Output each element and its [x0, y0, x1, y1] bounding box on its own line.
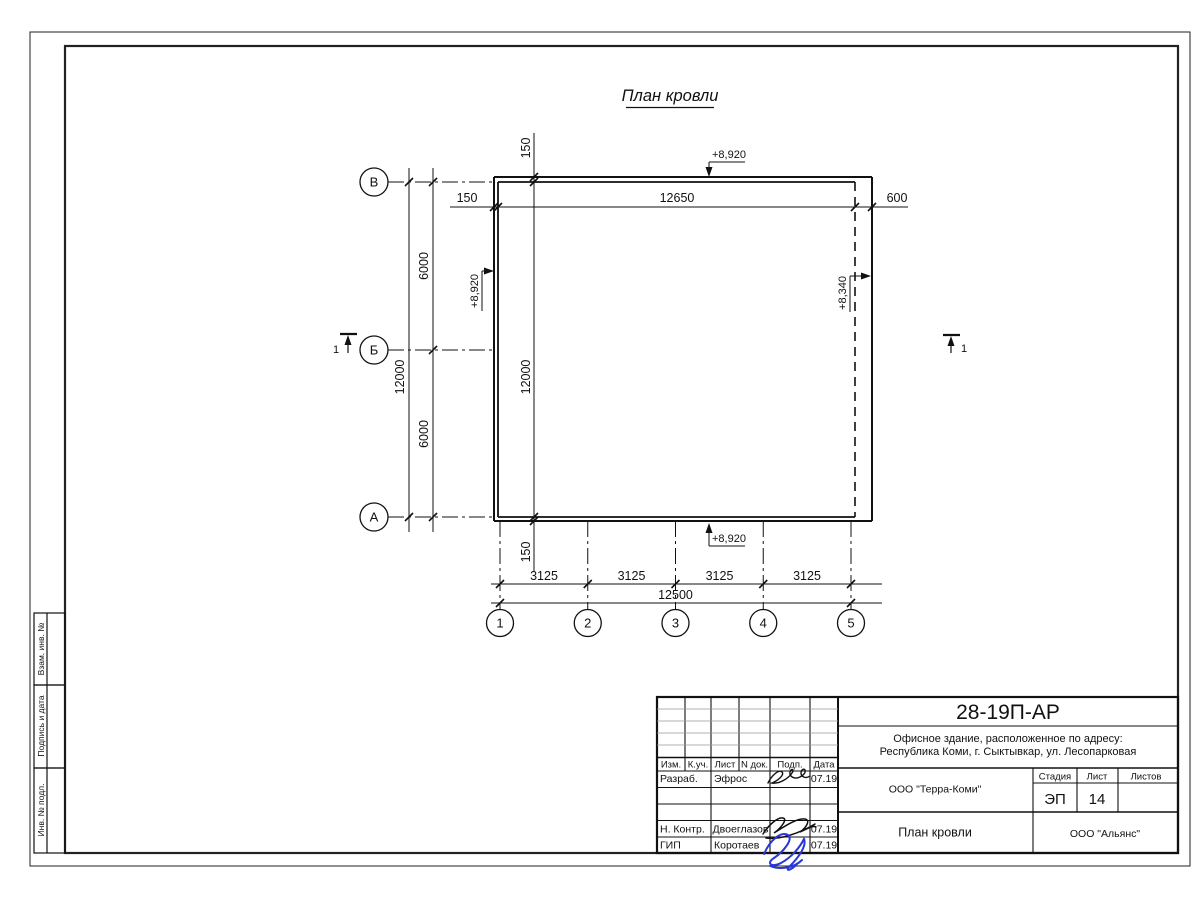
elevation-mark-left: +8,920	[469, 268, 494, 312]
elevation-value-top: +8,920	[712, 149, 746, 161]
signatures	[763, 769, 816, 870]
axis-label-a: А	[370, 510, 379, 525]
tb-stage-value: ЭП	[1044, 791, 1066, 808]
plan-title: План кровли	[622, 87, 719, 105]
tb-header-ndok: N док.	[741, 760, 768, 771]
axis-label-v: В	[370, 175, 379, 190]
tb-header-podp: Подп.	[777, 760, 802, 771]
tb-role-nkontr: Н. Контр.	[660, 824, 705, 836]
dim-left-total: 12000	[393, 360, 407, 395]
dim-bottom-seg-2: 3125	[618, 569, 646, 583]
section-label-right: 1	[961, 343, 967, 355]
tb-sheet-number: 14	[1089, 791, 1106, 808]
axis-bubbles	[360, 168, 865, 637]
tb-header-kuch: К.уч.	[688, 760, 709, 771]
arrow-right-icon	[484, 268, 494, 275]
tb-sheets-label: Листов	[1131, 772, 1162, 783]
dimension-lines	[409, 133, 908, 603]
dim-top-right: 600	[887, 191, 908, 205]
margin-label-inv: Инв. № подл.	[36, 784, 46, 837]
tb-sheet-label: Лист	[1087, 772, 1108, 783]
arrow-right-icon	[861, 273, 871, 280]
tb-role-gip: ГИП	[660, 840, 681, 852]
dim-left-seg2: 6000	[417, 420, 431, 448]
dim-bottom-seg-1: 3125	[530, 569, 558, 583]
elevation-mark-top: +8,920	[706, 149, 746, 177]
object-address-line2: Республика Коми, г. Сыктывкар, ул. Лесоп…	[880, 746, 1137, 758]
elevation-value-left: +8,920	[469, 274, 481, 308]
axis-lines	[388, 182, 851, 610]
axis-label-1: 1	[496, 616, 503, 631]
arrow-up-icon	[948, 336, 955, 346]
tb-role-razrab: Разраб.	[660, 773, 698, 785]
elevation-value-bottom: +8,920	[712, 533, 746, 545]
arrow-up-icon	[345, 335, 352, 345]
tb-name-korotaev: Коротаев	[714, 840, 760, 852]
tb-stage-label: Стадия	[1039, 772, 1071, 783]
margin-label-podpis: Подпись и дата	[36, 695, 46, 756]
drawing-canvas: Взам. инв. № Подпись и дата Инв. № подл.…	[0, 0, 1200, 900]
tb-sheet-title: План кровли	[898, 826, 972, 840]
arrow-down-icon	[706, 167, 713, 177]
dim-bottom-total: 12500	[658, 588, 693, 602]
dim-top-span: 12650	[660, 191, 695, 205]
axis-label-2: 2	[584, 616, 591, 631]
elevation-value-right: +8,340	[837, 276, 849, 310]
elevation-mark-bottom: +8,920	[706, 523, 746, 546]
section-mark-right: 1	[943, 335, 967, 355]
dim-inner-span: 12000	[519, 360, 533, 395]
tb-designer: ООО "Терра-Коми"	[889, 784, 982, 796]
tb-contractor: ООО "Альянс"	[1070, 828, 1140, 840]
tb-date-nkontr: 07.19	[811, 824, 837, 836]
dim-inner-bottom: 150	[519, 542, 533, 563]
dim-top-overhang: 150	[457, 191, 478, 205]
tb-header-list: Лист	[715, 760, 736, 771]
tb-date-razrab: 07.19	[811, 773, 837, 785]
arrow-up-icon	[706, 523, 713, 533]
margin-label-vzam: Взам. инв. №	[36, 623, 46, 676]
axis-label-b: Б	[370, 343, 379, 358]
dimension-ticks	[405, 173, 876, 607]
drawing-sheet: Взам. инв. № Подпись и дата Инв. № подл.…	[0, 0, 1200, 900]
dim-bottom-seg-3: 3125	[706, 569, 734, 583]
roof-outline	[494, 177, 872, 521]
tb-header-izm: Изм.	[661, 760, 681, 771]
tb-header-data: Дата	[813, 760, 835, 771]
section-label-left: 1	[333, 344, 339, 356]
axis-label-3: 3	[672, 616, 679, 631]
axis-label-4: 4	[760, 616, 767, 631]
tb-name-dvoeglazov: Двоеглазов	[713, 825, 769, 836]
tb-name-efros: Эфрос	[714, 773, 747, 785]
dim-left-seg1: 6000	[417, 252, 431, 280]
tb-date-gip: 07.19	[811, 840, 837, 852]
section-mark-left: 1	[333, 334, 357, 356]
doc-number: 28-19П-АР	[956, 701, 1060, 724]
dim-bottom-seg-4: 3125	[793, 569, 821, 583]
object-address-line1: Офисное здание, расположенное по адресу:	[893, 733, 1122, 745]
dim-inner-top: 150	[519, 138, 533, 159]
elevation-mark-right: +8,340	[837, 273, 871, 313]
axis-label-5: 5	[847, 616, 854, 631]
